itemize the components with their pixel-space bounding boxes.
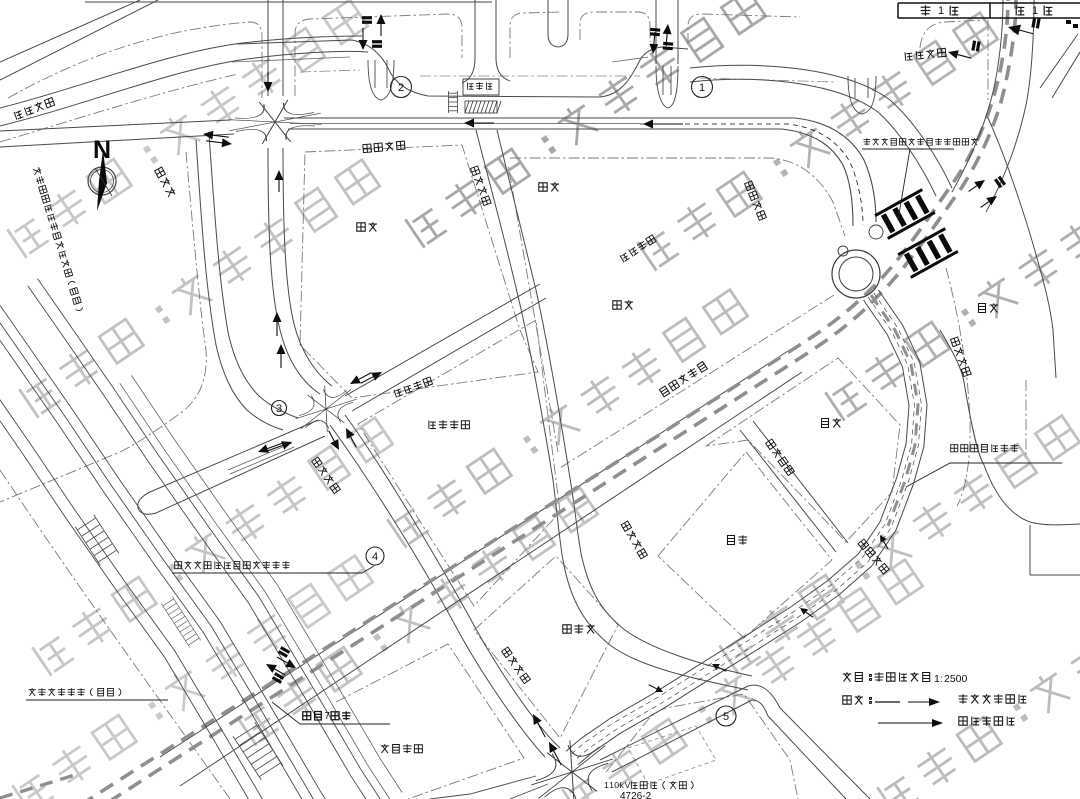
svg-text:1: 1 bbox=[938, 5, 944, 17]
svg-text:5: 5 bbox=[723, 711, 729, 723]
svg-text:2: 2 bbox=[398, 82, 404, 94]
svg-text:3: 3 bbox=[276, 403, 282, 415]
svg-text:1: 1 bbox=[699, 82, 705, 94]
svg-text:1: 1 bbox=[1032, 5, 1038, 17]
svg-text:1:: 1: bbox=[934, 673, 943, 685]
svg-text:2500: 2500 bbox=[944, 673, 968, 685]
svg-text:N: N bbox=[93, 136, 111, 164]
svg-text:V: V bbox=[625, 780, 631, 790]
svg-text:4726-2: 4726-2 bbox=[620, 791, 652, 799]
svg-text:7: 7 bbox=[324, 711, 330, 722]
svg-text:4: 4 bbox=[372, 551, 378, 563]
